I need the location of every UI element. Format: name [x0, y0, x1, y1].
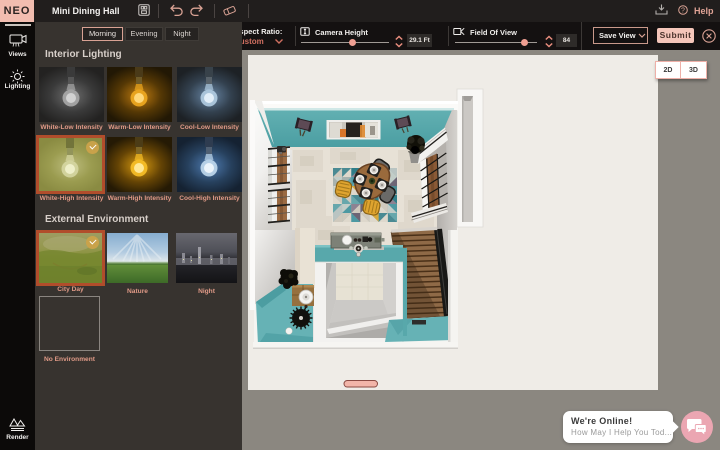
svg-text:?: ?	[681, 8, 685, 15]
